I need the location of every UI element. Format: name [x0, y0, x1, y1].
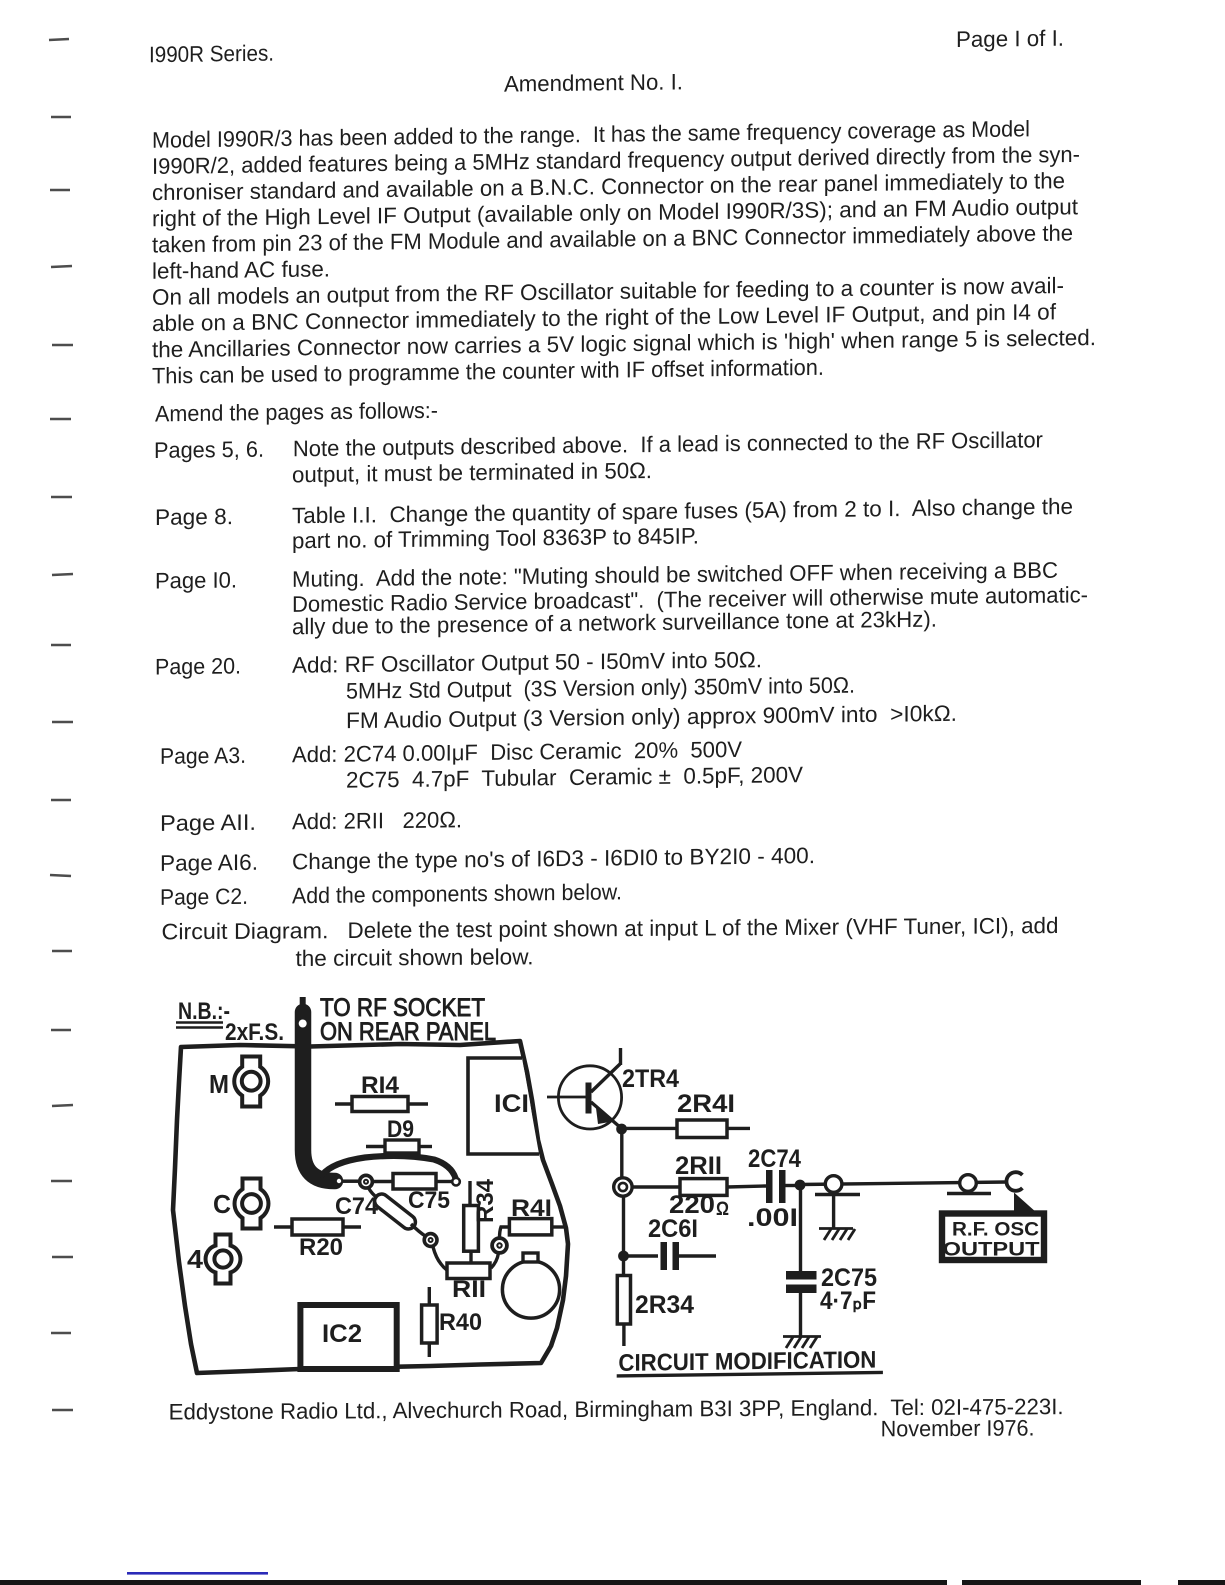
- svg-text:Page C2.: Page C2.: [160, 884, 248, 910]
- svg-text:left-hand AC fuse.: left-hand AC fuse.: [152, 256, 330, 283]
- svg-text:M: M: [209, 1069, 229, 1099]
- svg-text:N.B.:-: N.B.:-: [178, 998, 230, 1025]
- svg-text:RII: RII: [452, 1276, 486, 1303]
- svg-text:R34: R34: [472, 1178, 499, 1223]
- svg-text:4: 4: [187, 1244, 204, 1274]
- svg-text:Page A3.: Page A3.: [160, 743, 246, 769]
- svg-text:RI4: RI4: [361, 1072, 400, 1099]
- svg-text:2C74: 2C74: [748, 1145, 801, 1173]
- svg-text:Amendment No. I.: Amendment No. I.: [504, 69, 683, 96]
- svg-text:Pages 5, 6.: Pages 5, 6.: [154, 437, 264, 463]
- svg-text:part no. of Trimming Tool 8363: part no. of Trimming Tool 8363P to 845IP…: [292, 523, 699, 553]
- svg-text:Page I of I.: Page I of I.: [956, 26, 1064, 52]
- svg-text:C: C: [213, 1189, 231, 1219]
- svg-text:2R34: 2R34: [635, 1291, 694, 1319]
- svg-text:I990R Series.: I990R Series.: [149, 41, 274, 68]
- svg-text:2TR4: 2TR4: [622, 1065, 679, 1093]
- svg-text:D9: D9: [387, 1116, 414, 1143]
- svg-text:Ω: Ω: [716, 1199, 729, 1220]
- svg-text:4·7ₚF: 4·7ₚF: [820, 1287, 876, 1315]
- svg-text:Page AI6.: Page AI6.: [160, 850, 258, 876]
- svg-text:Page 20.: Page 20.: [155, 653, 241, 679]
- svg-text:Add the components shown below: Add the components shown below.: [292, 879, 622, 908]
- svg-text:R4I: R4I: [511, 1195, 552, 1222]
- svg-text:Amend the pages as follows:-: Amend the pages as follows:-: [155, 398, 438, 427]
- svg-text:2xF.S.: 2xF.S.: [225, 1019, 284, 1046]
- svg-text:2C6I: 2C6I: [648, 1215, 698, 1243]
- svg-text:R.F. OSC: R.F. OSC: [952, 1218, 1039, 1240]
- svg-text:output, it must be terminated: output, it must be terminated in 50Ω.: [292, 458, 652, 487]
- svg-text:ICI: ICI: [494, 1090, 529, 1118]
- svg-text:November I976.: November I976.: [881, 1416, 1035, 1442]
- svg-text:C75: C75: [408, 1187, 450, 1214]
- svg-text:Delete the test point shown at: Delete the test point shown at input L o…: [348, 913, 1059, 943]
- svg-text:Page I0.: Page I0.: [155, 567, 237, 593]
- svg-text:Page 8.: Page 8.: [155, 504, 233, 530]
- svg-text:Page AII.: Page AII.: [160, 810, 256, 836]
- svg-text:.00I: .00I: [747, 1204, 798, 1232]
- svg-text:C74: C74: [335, 1193, 379, 1220]
- svg-text:the circuit shown below.: the circuit shown below.: [296, 944, 534, 971]
- svg-text:R40: R40: [439, 1309, 482, 1336]
- svg-text:Add: 2RII 220Ω.: Add: 2RII 220Ω.: [292, 807, 462, 834]
- svg-text:R20: R20: [299, 1234, 343, 1261]
- svg-text:OUTPUT: OUTPUT: [943, 1238, 1040, 1260]
- svg-text:IC2: IC2: [322, 1320, 362, 1348]
- svg-text:2R4I: 2R4I: [677, 1090, 735, 1118]
- svg-text:ON REAR PANEL: ON REAR PANEL: [320, 1018, 496, 1046]
- svg-text:Circuit Diagram.: Circuit Diagram.: [162, 918, 329, 944]
- svg-text:2RII: 2RII: [675, 1152, 722, 1180]
